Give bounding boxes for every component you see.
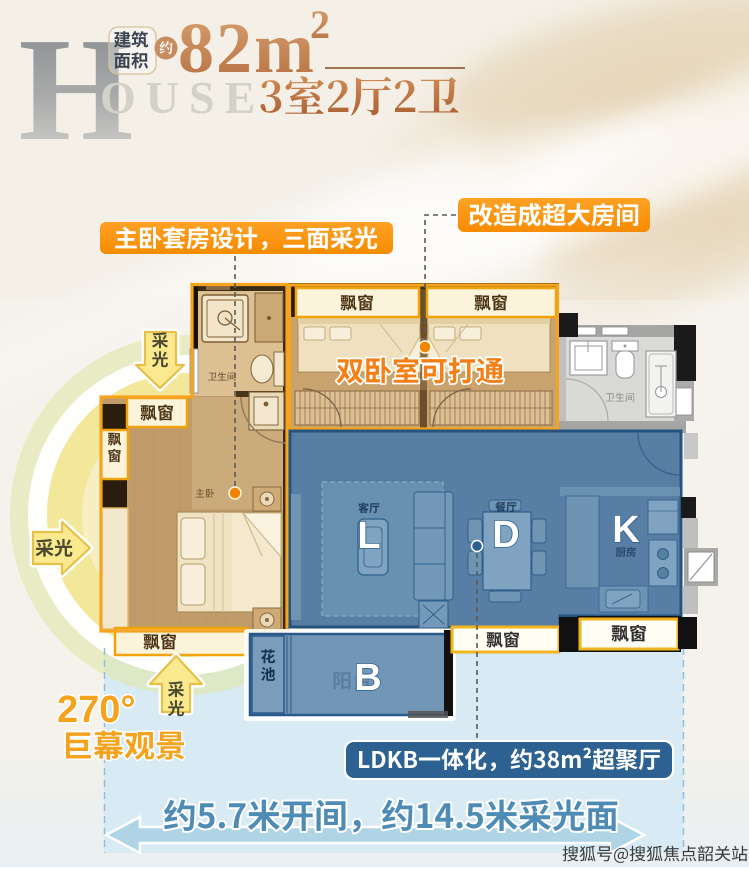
svg-text:82m: 82m: [178, 8, 316, 88]
svg-text:270°: 270°: [57, 689, 136, 731]
svg-text:K: K: [612, 509, 640, 551]
svg-text:L: L: [357, 515, 380, 557]
svg-text:D: D: [492, 514, 519, 556]
svg-text:2: 2: [310, 2, 330, 47]
svg-text:B: B: [354, 657, 381, 699]
